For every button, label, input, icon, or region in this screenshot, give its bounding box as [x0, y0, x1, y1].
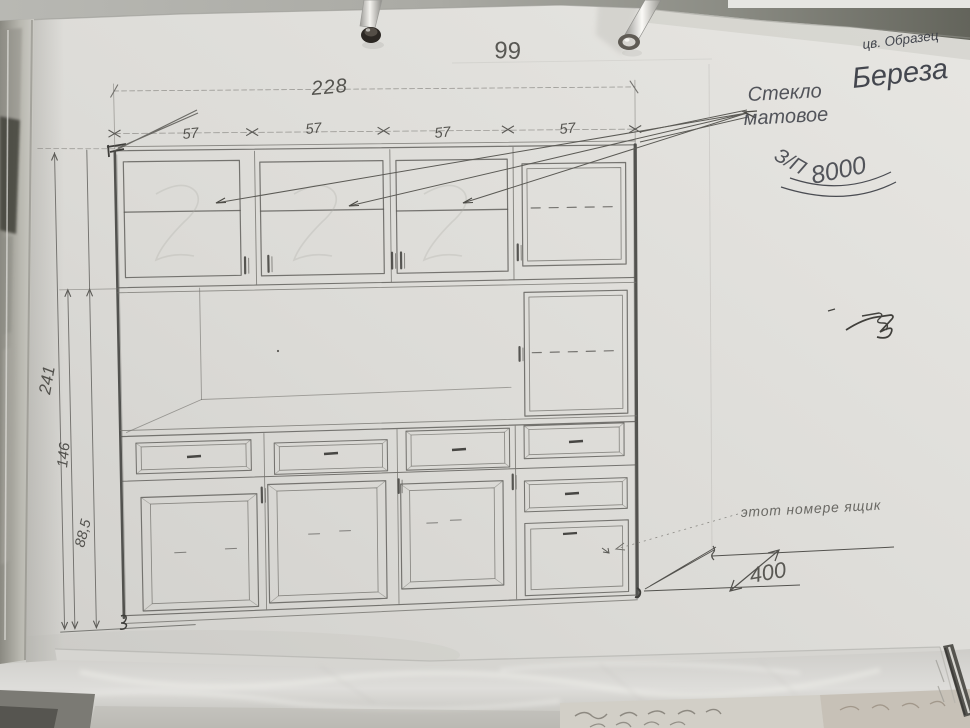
- svg-text:57: 57: [182, 125, 201, 143]
- svg-text:57: 57: [434, 124, 453, 142]
- svg-text:228: 228: [310, 75, 349, 100]
- svg-text:Стекло: Стекло: [747, 80, 822, 106]
- svg-text:99: 99: [494, 37, 522, 65]
- svg-text:57: 57: [305, 120, 324, 138]
- svg-text:57: 57: [559, 120, 578, 138]
- svg-text:матовое: матовое: [743, 104, 829, 130]
- svg-text:146: 146: [54, 441, 74, 468]
